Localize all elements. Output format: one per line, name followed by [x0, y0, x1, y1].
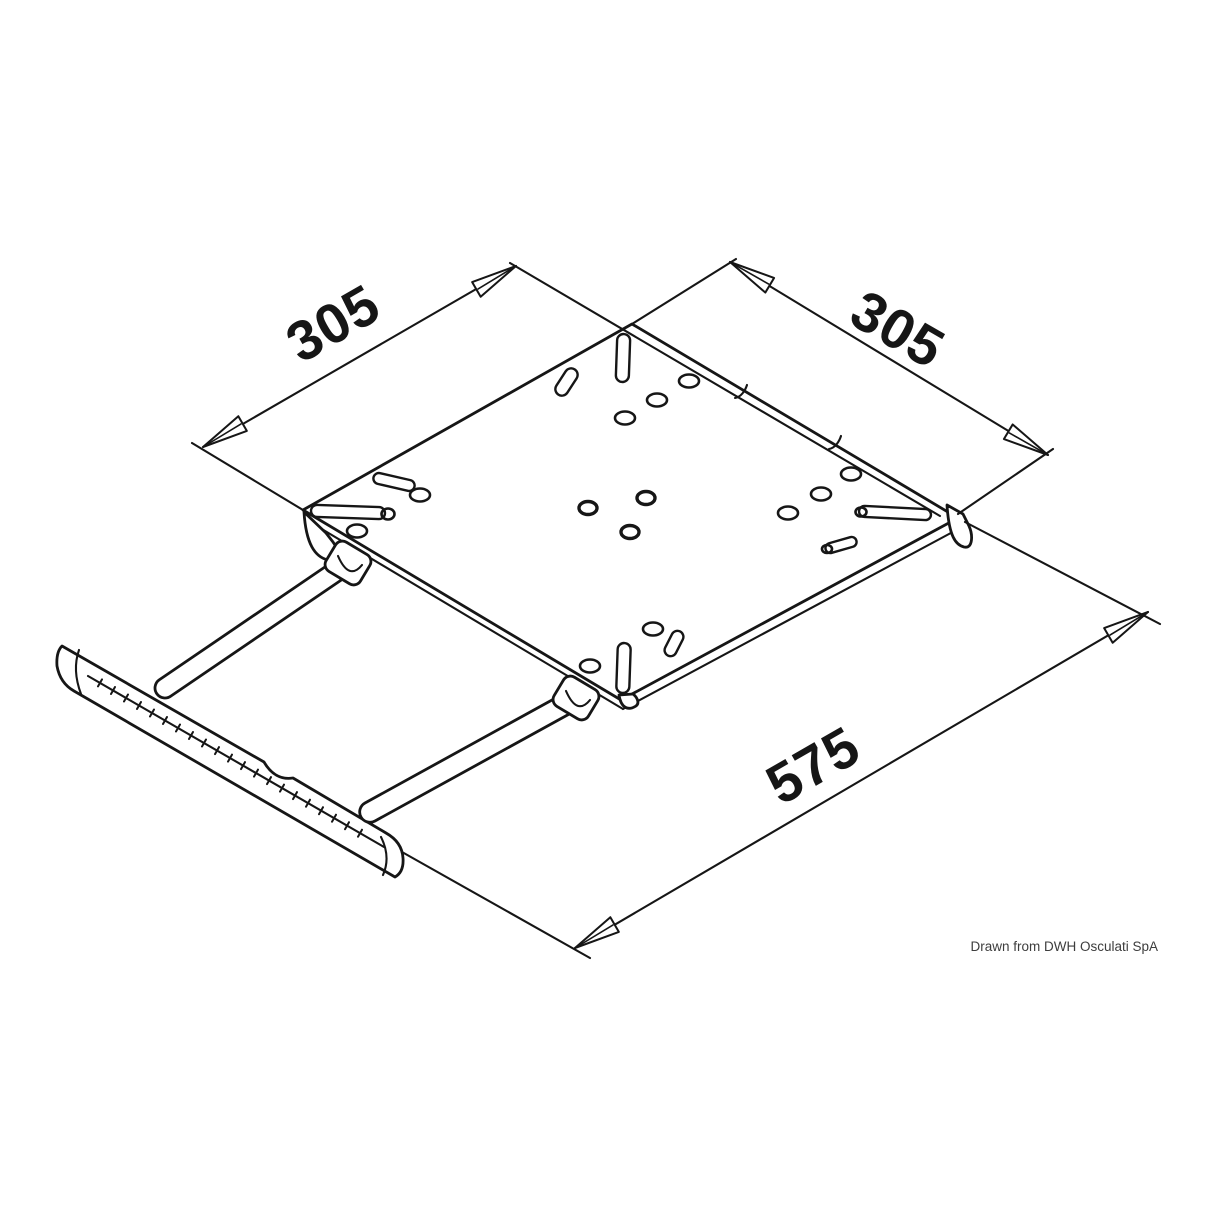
slot-bottom-vertical [616, 643, 631, 693]
arrowhead [571, 917, 619, 955]
sliding-swivel-seat-base-drawing: 305 305 575 Drawn from DWH Osculati SpA [0, 0, 1214, 1214]
slot-right-long [859, 506, 931, 521]
drawing-credit: Drawn from DWH Osculati SpA [970, 939, 1158, 954]
slot-top-vertical [616, 334, 631, 382]
extension-line-right-corner-down [965, 522, 1160, 624]
dimension-label-extended-length: 575 [755, 714, 870, 817]
bottom-corner-tab [619, 694, 638, 708]
slide-tube-right [360, 689, 582, 822]
extension-line-handle-end [402, 852, 590, 958]
extension-line-right-corner-up [958, 449, 1053, 514]
handle-ridge-line [88, 676, 384, 847]
right-corner-tab [947, 505, 972, 547]
arrowhead [1104, 605, 1152, 643]
arrowhead [1004, 424, 1052, 462]
arrowhead [199, 416, 247, 454]
slide-tube-left [155, 554, 356, 698]
extension-line-top-corner [632, 259, 736, 324]
slot-left-long [311, 505, 385, 520]
dimension-label-plate-depth: 305 [840, 278, 955, 381]
handle-body [57, 646, 403, 877]
dimension-label-plate-width: 305 [275, 272, 390, 375]
handle-bar [57, 646, 403, 877]
technical-drawing-page: 305 305 575 Drawn from DWH Osculati SpA [0, 0, 1214, 1214]
extension-line-left-corner [192, 443, 303, 510]
